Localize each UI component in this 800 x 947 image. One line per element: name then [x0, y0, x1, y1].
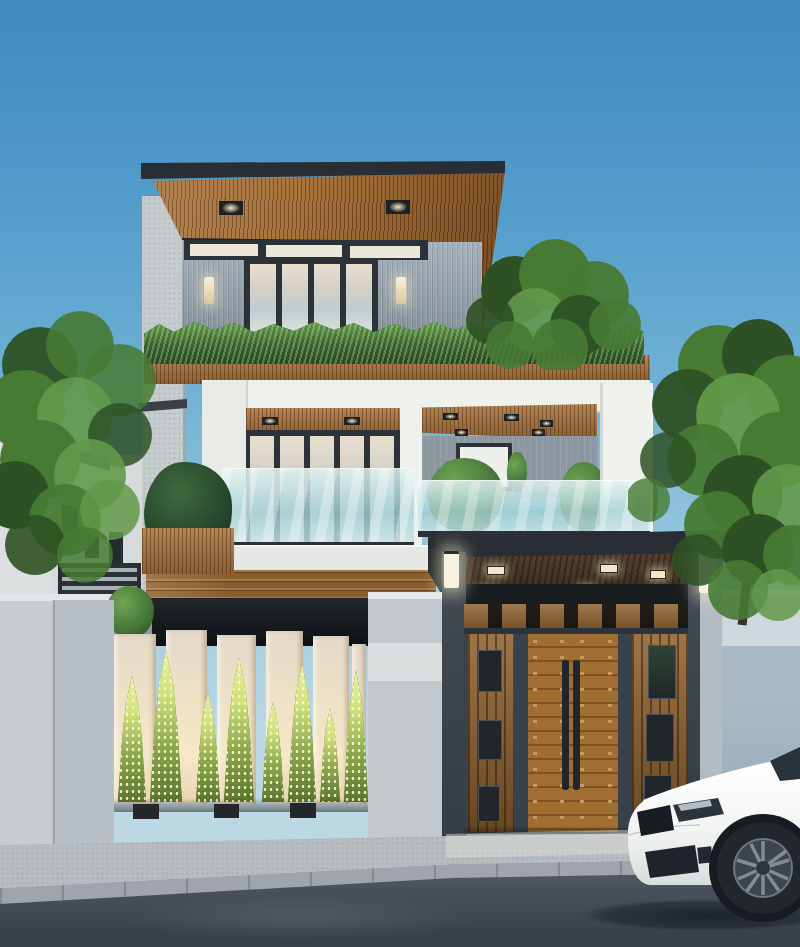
glass-balustrade-right — [418, 480, 650, 537]
terrace-ceiling — [422, 404, 597, 440]
pillar-cap — [368, 592, 442, 599]
tree-rooftop — [455, 235, 645, 370]
plant-base-block — [133, 804, 159, 819]
fence-right-pillar — [368, 596, 442, 846]
ceiling-light — [262, 417, 278, 425]
fence-pillar-band — [368, 643, 442, 681]
gate-panel-inset — [478, 720, 502, 760]
ceiling-light — [532, 429, 545, 436]
roof-recessed-light — [386, 200, 410, 214]
gate-panel-inset — [648, 645, 676, 699]
tree-rooftop-canopy — [466, 239, 641, 370]
tree-right — [628, 310, 800, 630]
ceiling-light — [540, 420, 553, 427]
soffit-light — [487, 566, 505, 575]
tree-right-canopy — [628, 319, 800, 625]
gate-lamp-left — [444, 551, 459, 588]
tree-left — [0, 295, 170, 595]
wall-sconce-right — [396, 277, 406, 304]
gate-panel-inset — [478, 786, 500, 822]
transom-pane — [350, 246, 420, 258]
ceiling-light — [504, 414, 519, 421]
road-patch — [120, 895, 480, 940]
plant-base-block — [290, 803, 316, 818]
wall-sconce-left — [204, 277, 214, 304]
soffit-light — [600, 564, 618, 573]
gate-stud-column — [533, 640, 537, 828]
glass-balustrade-left — [222, 468, 414, 549]
gate-left-post — [442, 552, 466, 838]
ceiling-light — [443, 413, 458, 420]
ceiling-light — [455, 429, 468, 436]
transom-pane — [190, 244, 258, 256]
fence-left-pillar — [53, 600, 114, 845]
car-hub — [756, 861, 770, 875]
top-floor-door-pane — [282, 264, 308, 336]
ceiling-light — [344, 417, 360, 425]
gate-panel-inset — [478, 650, 502, 692]
roof-recessed-light — [219, 201, 243, 215]
plant-base-block — [214, 804, 239, 818]
transom-pane — [266, 245, 342, 257]
tree-left-canopy — [0, 311, 156, 583]
gate-frame-divider — [514, 634, 528, 832]
car — [558, 733, 800, 947]
scene — [0, 0, 800, 947]
